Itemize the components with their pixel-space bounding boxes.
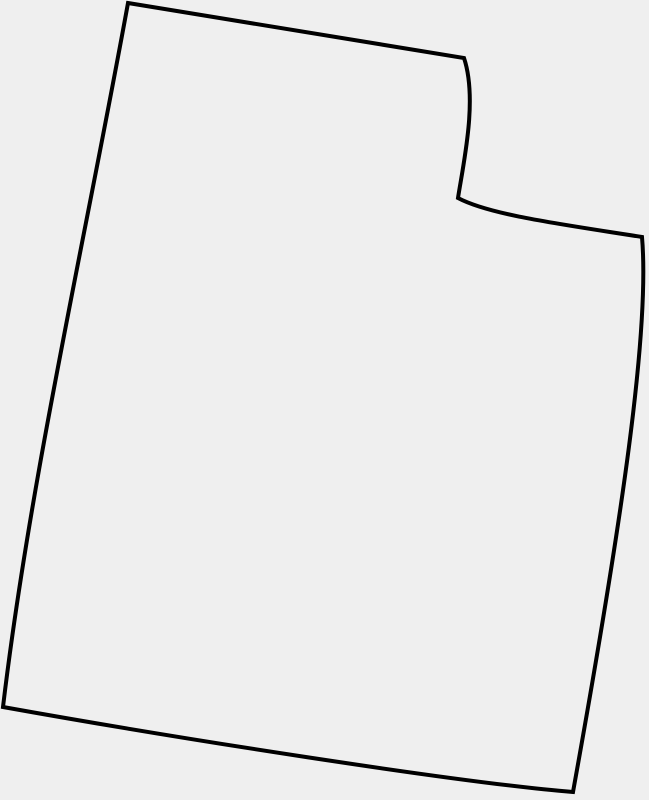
utah-border-path	[3, 3, 643, 792]
utah-outline-map	[0, 0, 649, 800]
map-canvas	[0, 0, 649, 800]
